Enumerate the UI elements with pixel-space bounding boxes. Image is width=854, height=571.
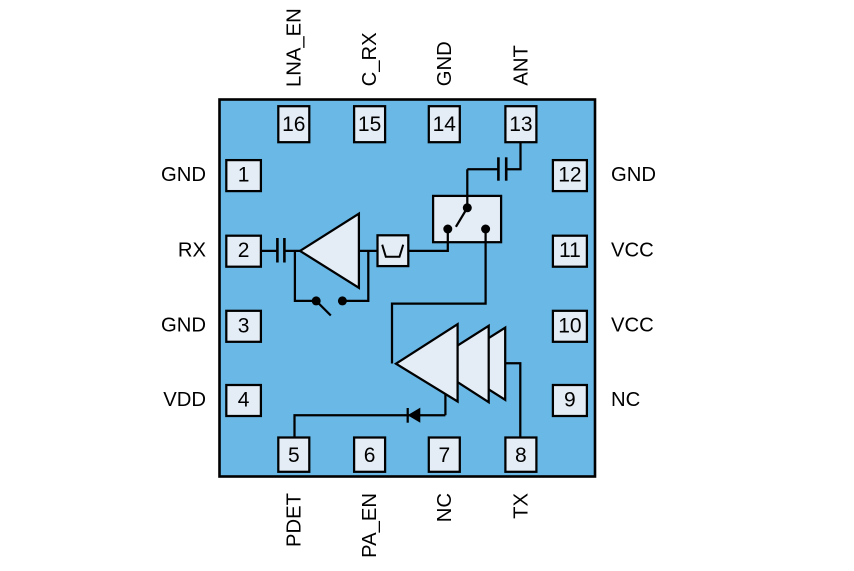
svg-text:VDD: VDD xyxy=(163,389,206,411)
svg-text:6: 6 xyxy=(364,444,376,467)
svg-text:PDET: PDET xyxy=(283,493,305,547)
svg-text:2: 2 xyxy=(238,239,250,262)
svg-text:13: 13 xyxy=(509,113,532,136)
svg-text:14: 14 xyxy=(433,113,457,136)
svg-text:NC: NC xyxy=(434,493,456,522)
svg-text:RX: RX xyxy=(178,240,207,262)
svg-text:12: 12 xyxy=(558,164,581,187)
svg-text:NC: NC xyxy=(611,389,640,411)
svg-text:LNA_EN: LNA_EN xyxy=(283,8,305,87)
svg-text:TX: TX xyxy=(510,493,532,519)
svg-text:4: 4 xyxy=(238,389,250,412)
svg-text:PA_EN: PA_EN xyxy=(359,493,381,558)
svg-text:11: 11 xyxy=(559,239,581,262)
svg-text:GND: GND xyxy=(161,315,206,337)
svg-text:ANT: ANT xyxy=(510,45,532,86)
svg-text:GND: GND xyxy=(434,41,456,86)
svg-text:C_RX: C_RX xyxy=(359,32,381,87)
svg-text:10: 10 xyxy=(558,314,581,337)
svg-text:GND: GND xyxy=(161,164,206,186)
svg-text:9: 9 xyxy=(564,389,576,412)
svg-text:15: 15 xyxy=(358,113,381,136)
svg-text:VCC: VCC xyxy=(611,240,654,262)
svg-text:5: 5 xyxy=(288,444,300,467)
svg-text:7: 7 xyxy=(438,444,450,467)
svg-text:16: 16 xyxy=(282,113,305,136)
svg-text:8: 8 xyxy=(515,444,527,467)
svg-text:GND: GND xyxy=(611,164,656,186)
svg-text:1: 1 xyxy=(238,164,250,187)
svg-text:VCC: VCC xyxy=(611,315,654,337)
svg-text:3: 3 xyxy=(238,314,250,337)
